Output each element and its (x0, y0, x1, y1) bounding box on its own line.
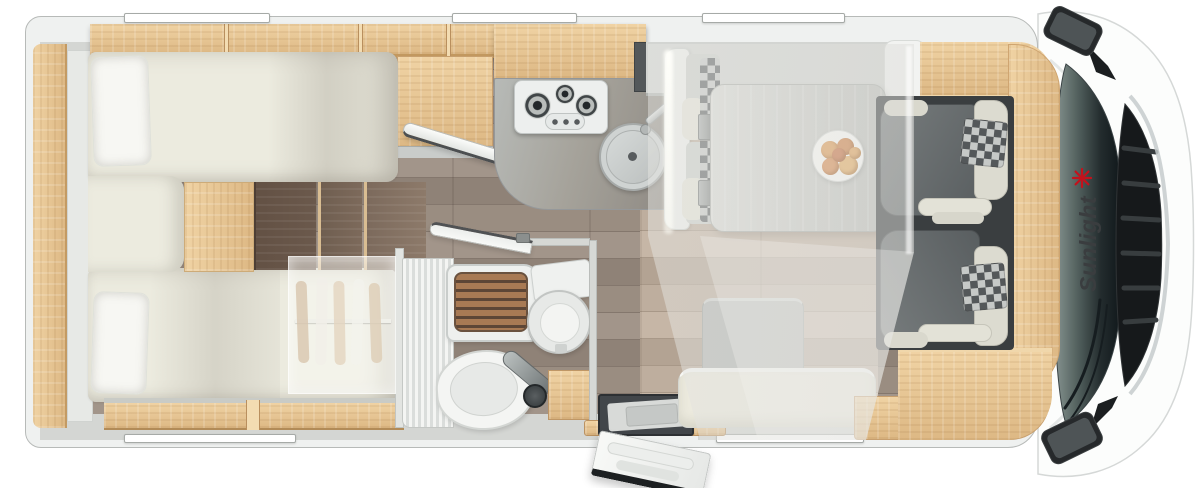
window-bottom-1 (124, 434, 296, 443)
sun-logo-icon (1073, 169, 1091, 187)
vanity-cabinet (548, 370, 592, 420)
overhead-locker-kitchen (494, 24, 646, 82)
bed-step-platform (184, 182, 254, 272)
overlay-right-edge (906, 46, 912, 254)
pillow-top (90, 55, 152, 167)
hanger-icon (315, 277, 328, 365)
burner-icon (555, 84, 575, 104)
window-top-3 (702, 13, 845, 23)
floorplan: Sunlight (0, 0, 1200, 488)
seat-armrest (932, 212, 984, 224)
toilet-seat (527, 290, 591, 354)
seat-armrest (918, 324, 992, 342)
cab-rear-wood-step (898, 348, 1052, 440)
swivel-seat-right (874, 224, 1012, 350)
window-top-1 (124, 13, 270, 23)
side-bench-seat (678, 368, 876, 428)
window-top-2 (452, 13, 577, 23)
side-bench-backrest (702, 298, 804, 378)
window-bottom-2 (716, 434, 864, 443)
rear-wall-panel (33, 44, 67, 428)
entry-step-2 (625, 403, 678, 427)
dashboard-wood-trim (1008, 44, 1060, 392)
door-hinge-bracket (516, 233, 530, 243)
duvet-shade-top (268, 52, 398, 182)
toilet-lid-inner (540, 303, 580, 343)
locker-divider (446, 24, 451, 58)
toilet-hinge (555, 344, 567, 353)
hob-knob-panel (545, 113, 585, 130)
seat-edge-pad (884, 332, 928, 348)
fruit (849, 147, 861, 159)
fruit (832, 148, 846, 162)
seat-checker-cushion (960, 262, 1008, 312)
sink-drain (628, 152, 637, 161)
hanger-icon (333, 281, 345, 365)
shower-teak-grate (454, 272, 528, 332)
hanger-icon (369, 283, 383, 363)
under-bed-locker-divider (246, 400, 260, 430)
brand-wordmark: Sunlight (1075, 195, 1101, 292)
seat-checker-cushion (960, 118, 1009, 168)
mixer-tap-knob (523, 384, 547, 408)
bed-connector-cushion (88, 176, 184, 272)
pillow-bottom (90, 291, 150, 395)
overlay-glow-edge (664, 50, 673, 234)
fruit-plate (812, 130, 864, 182)
swivel-seat-left (874, 98, 1012, 224)
duvet-shade-bottom (150, 268, 280, 402)
hanger-icon (296, 281, 310, 363)
bathroom-wall-stub (530, 238, 590, 246)
wardrobe-overlay (288, 256, 396, 394)
kitchen-faucet-base (640, 124, 651, 135)
hanger-icon (351, 279, 365, 365)
bathroom-wall-right (589, 240, 597, 428)
